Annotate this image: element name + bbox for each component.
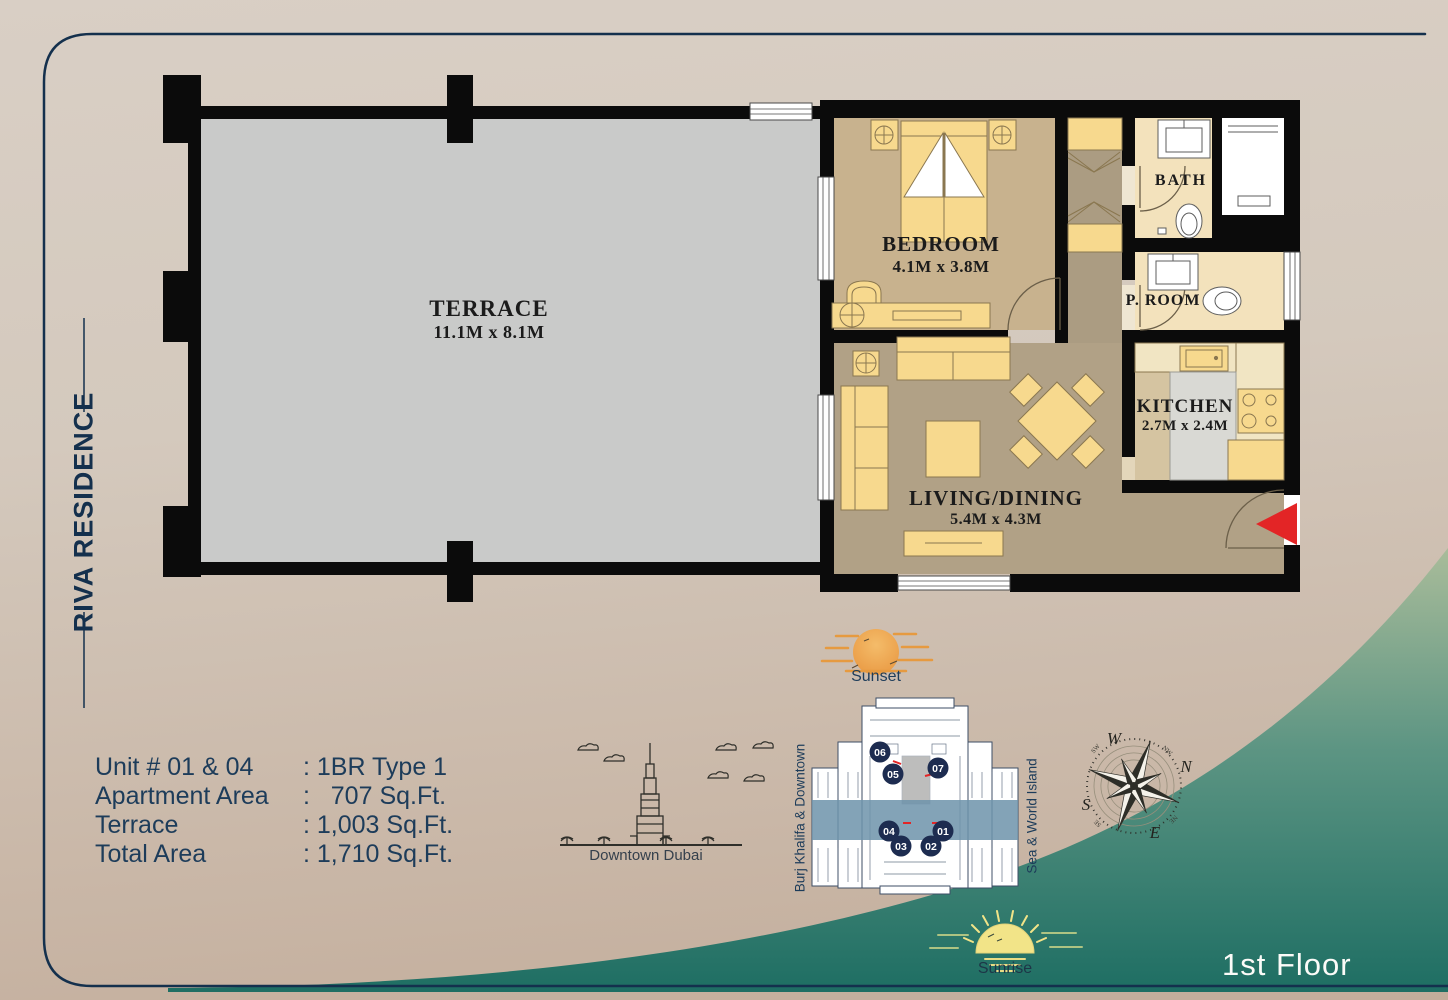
closet-shelf <box>1238 196 1270 206</box>
compass-southeast: SE <box>1093 818 1103 828</box>
entry-floor <box>1122 493 1284 574</box>
sofa-top-back <box>897 337 1010 352</box>
bath-door-threshold <box>1122 166 1135 205</box>
burj-khalifa-icon <box>630 743 670 845</box>
plan-canvas: 06 05 07 04 01 03 02 <box>0 0 1448 1000</box>
wardrobe <box>1068 224 1122 252</box>
proom-window <box>1284 252 1300 320</box>
kitchen-door-threshold <box>1122 457 1135 480</box>
kitchen-corner-counter <box>1228 440 1284 480</box>
compass-west: W <box>1107 729 1123 748</box>
cloud-icons <box>578 742 773 781</box>
compass-northwest: NW <box>1161 745 1174 758</box>
svg-text:02: 02 <box>925 841 937 853</box>
terrace-window <box>750 103 812 120</box>
key-plan: 06 05 07 04 01 03 02 <box>812 698 1018 894</box>
sunset-icon <box>822 629 932 675</box>
compass-north: N <box>1179 757 1193 776</box>
unit-badge: 03 <box>891 836 912 857</box>
sofa-left-back <box>841 386 855 510</box>
bedroom-window <box>818 177 834 280</box>
floor-plan-page: 06 05 07 04 01 03 02 <box>0 0 1448 1000</box>
svg-text:04: 04 <box>883 826 895 838</box>
downtown-skyline <box>560 742 773 845</box>
proom-toilet <box>1203 287 1241 315</box>
coffee-table <box>926 421 980 477</box>
floor-plan <box>163 75 1300 602</box>
living-window-left <box>818 395 834 500</box>
compass-southwest: SW <box>1090 742 1102 755</box>
room-floors <box>201 118 1284 574</box>
svg-text:03: 03 <box>895 841 907 853</box>
svg-text:06: 06 <box>874 747 886 759</box>
compass-east: E <box>1149 823 1161 842</box>
sofa-left-seat <box>855 386 888 510</box>
svg-text:01: 01 <box>937 826 949 838</box>
wardrobe <box>1068 118 1122 150</box>
unit-badge: 02 <box>921 836 942 857</box>
kitchen-island <box>1170 372 1236 480</box>
svg-text:05: 05 <box>887 769 899 781</box>
living-window-bottom <box>898 576 1010 590</box>
unit-badge: 07 <box>928 758 949 779</box>
unit-badge: 05 <box>883 764 904 785</box>
green-wave-decoration <box>168 548 1448 992</box>
bath-toilet <box>1176 204 1202 238</box>
terrace-floor <box>201 118 830 562</box>
proom-door-threshold <box>1122 285 1135 330</box>
key-plan-highlight-band <box>812 800 1018 840</box>
svg-text:07: 07 <box>932 763 944 775</box>
unit-badge: 06 <box>870 742 891 763</box>
compass-south: S <box>1082 795 1091 814</box>
